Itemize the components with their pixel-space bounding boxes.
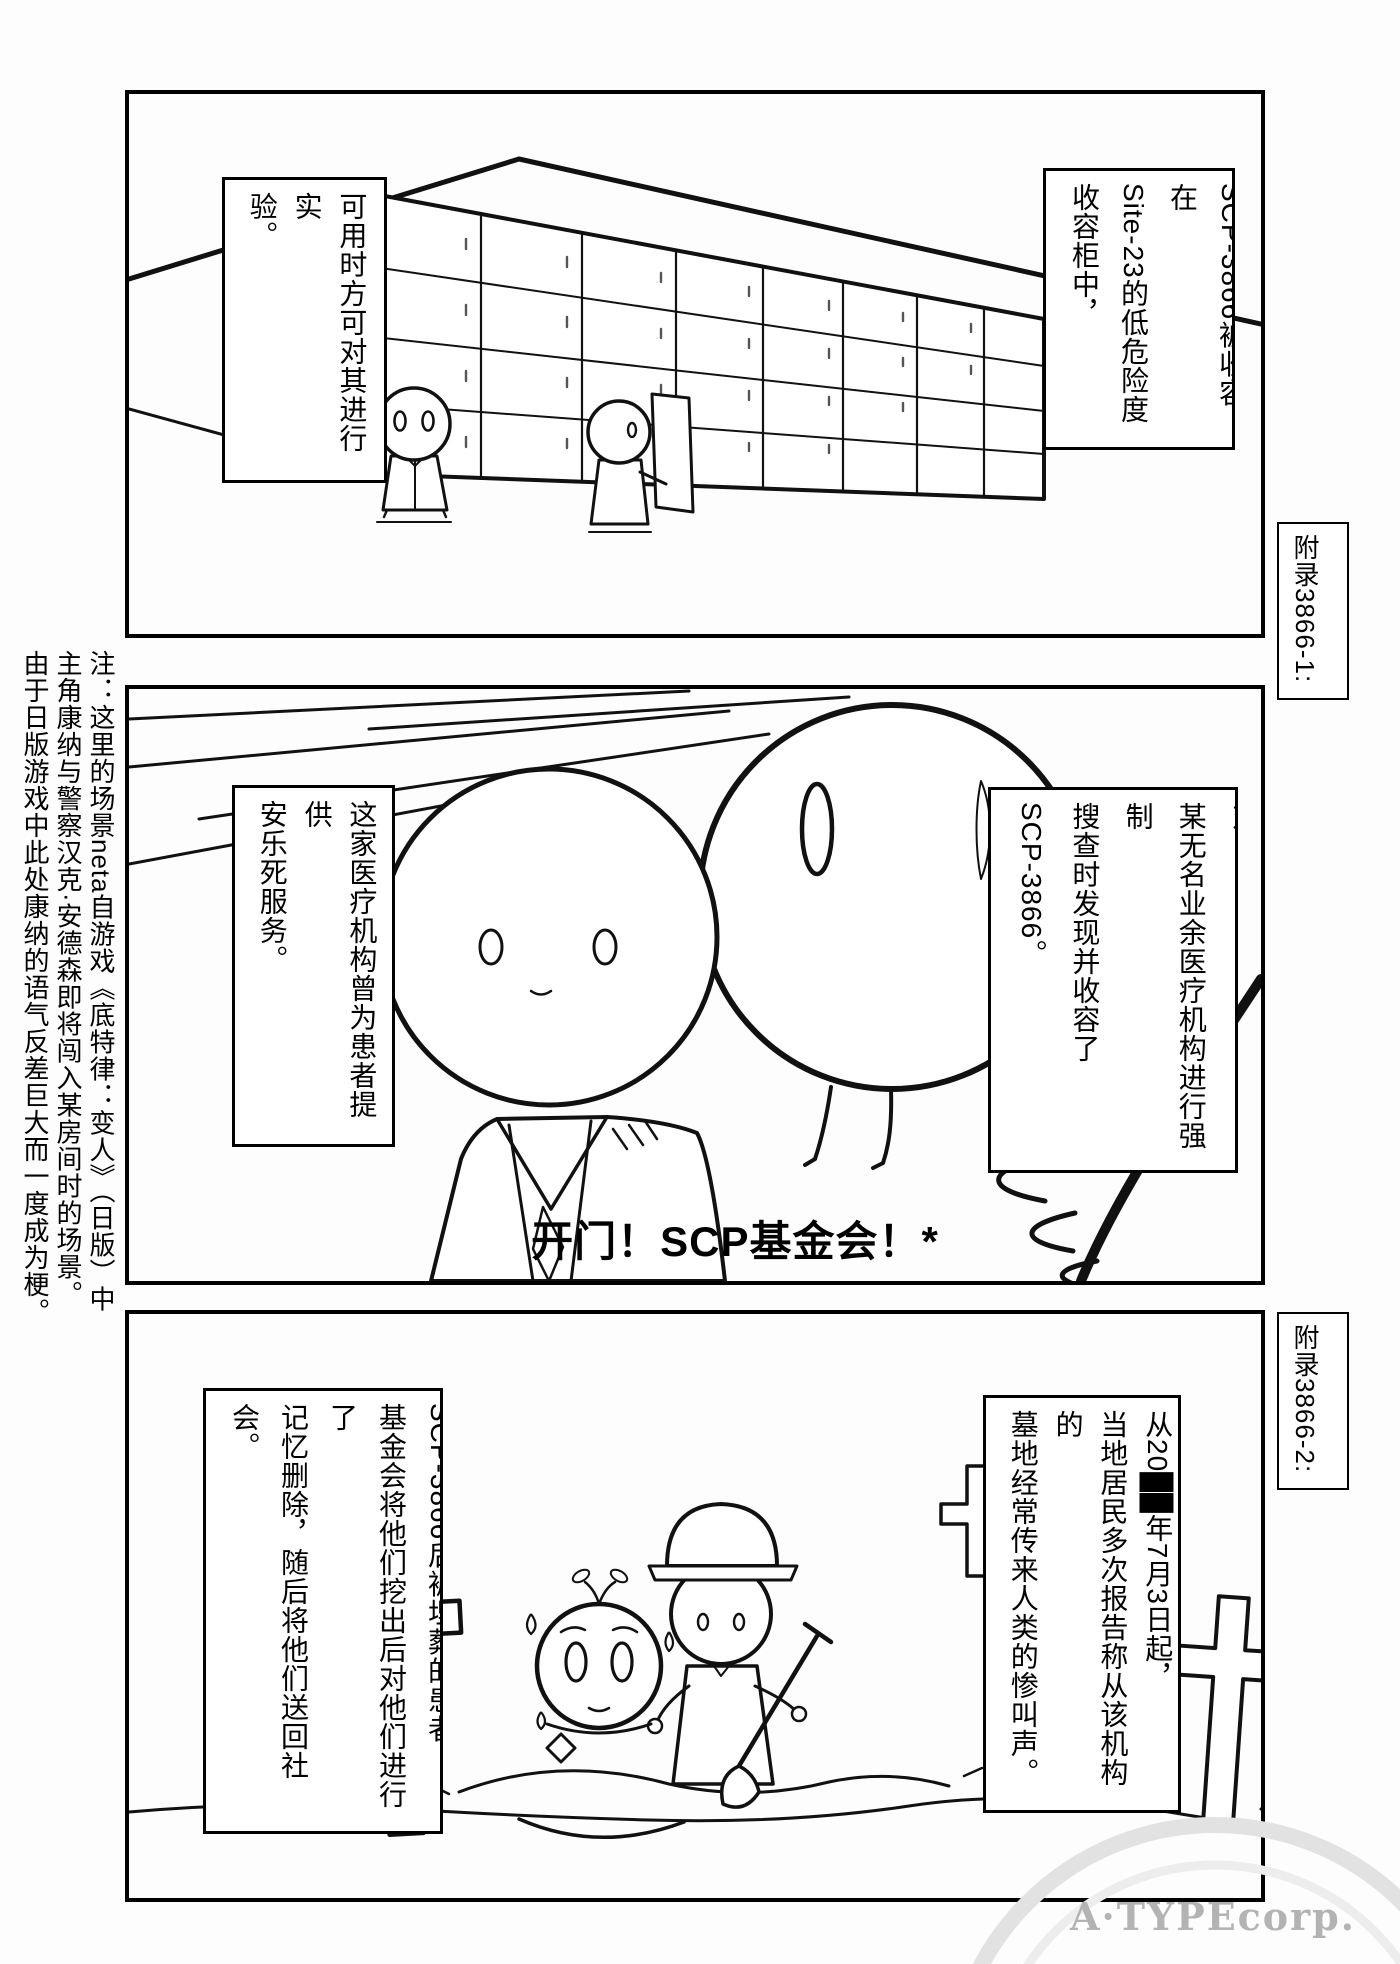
panel3-caption-left-text: 从现场发现了许多在服用SCP-3866后被埋葬的患者，基金会将他们挖出后对他们进… <box>220 1403 443 1819</box>
appendix-3866-2-text: 附录3866-2: <box>1287 1324 1324 1478</box>
panel2-caption-right-text: 20██年4月18日，基金会对某无名业余医疗机构进行强制搜查时发现并收容了SCP… <box>1005 802 1238 1158</box>
panel3-caption-left: 从现场发现了许多在服用SCP-3866后被埋葬的患者，基金会将他们挖出后对他们进… <box>203 1388 443 1834</box>
appendix-3866-1-text: 附录3866-1: <box>1287 534 1324 688</box>
panel3-caption-right: 从20██年7月3日起，当地居民多次报告称从该机构的墓地经常传来人类的惨叫声。 <box>983 1395 1181 1813</box>
appendix-3866-1-label: 附录3866-1: <box>1277 522 1349 700</box>
panel3-caption-right-text: 从20██年7月3日起，当地居民多次报告称从该机构的墓地经常传来人类的惨叫声。 <box>1000 1410 1179 1798</box>
doctor-character <box>381 769 725 1281</box>
panel1-caption-left: 只有在长期人型收容荚可用时方可对其进行实验。 <box>222 177 387 483</box>
panel2-caption-left-text: 这家医疗机构曾为患者提供安乐死服务。 <box>249 800 383 1132</box>
panel2-caption-right: 20██年4月18日，基金会对某无名业余医疗机构进行强制搜查时发现并收容了SCP… <box>988 787 1238 1173</box>
appendix-3866-2-label: 附录3866-2: <box>1277 1312 1349 1490</box>
speech-open-the-door: 开门！SCP基金会！* <box>505 1208 965 1270</box>
margin-note-text: 注：这里的场景neta自游戏《底特律：变人》（日版）中主角康纳与警察汉克·安德森… <box>18 650 117 1370</box>
open-locker-door <box>652 394 693 512</box>
panel1-caption-right-text: SCP-3866被收容在Site-23的低危险度收容柜中， <box>1060 183 1235 435</box>
margin-note: 注：这里的场景neta自游戏《底特律：变人》（日版）中主角康纳与警察汉克·安德森… <box>18 650 124 1370</box>
panel1-caption-right: SCP-3866被收容在Site-23的低危险度收容柜中， <box>1043 168 1235 450</box>
panel1-caption-left-text: 只有在长期人型收容荚可用时方可对其进行实验。 <box>239 192 387 468</box>
studio-watermark: A·TYPEcorp. <box>1070 1894 1356 1939</box>
worker-character <box>648 1504 831 1807</box>
panel2-caption-left: 这家医疗机构曾为患者提供安乐死服务。 <box>232 785 395 1147</box>
